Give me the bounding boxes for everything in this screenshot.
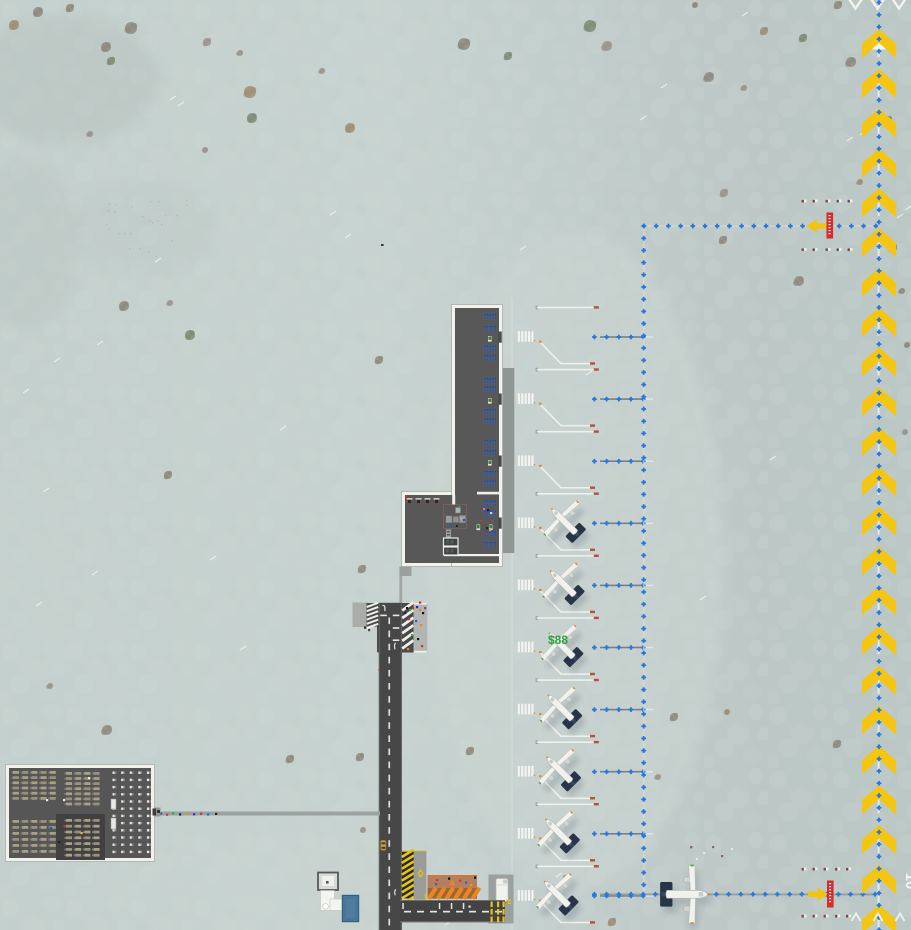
svg-text:$88: $88	[548, 633, 568, 647]
svg-text:10: 10	[902, 873, 911, 890]
